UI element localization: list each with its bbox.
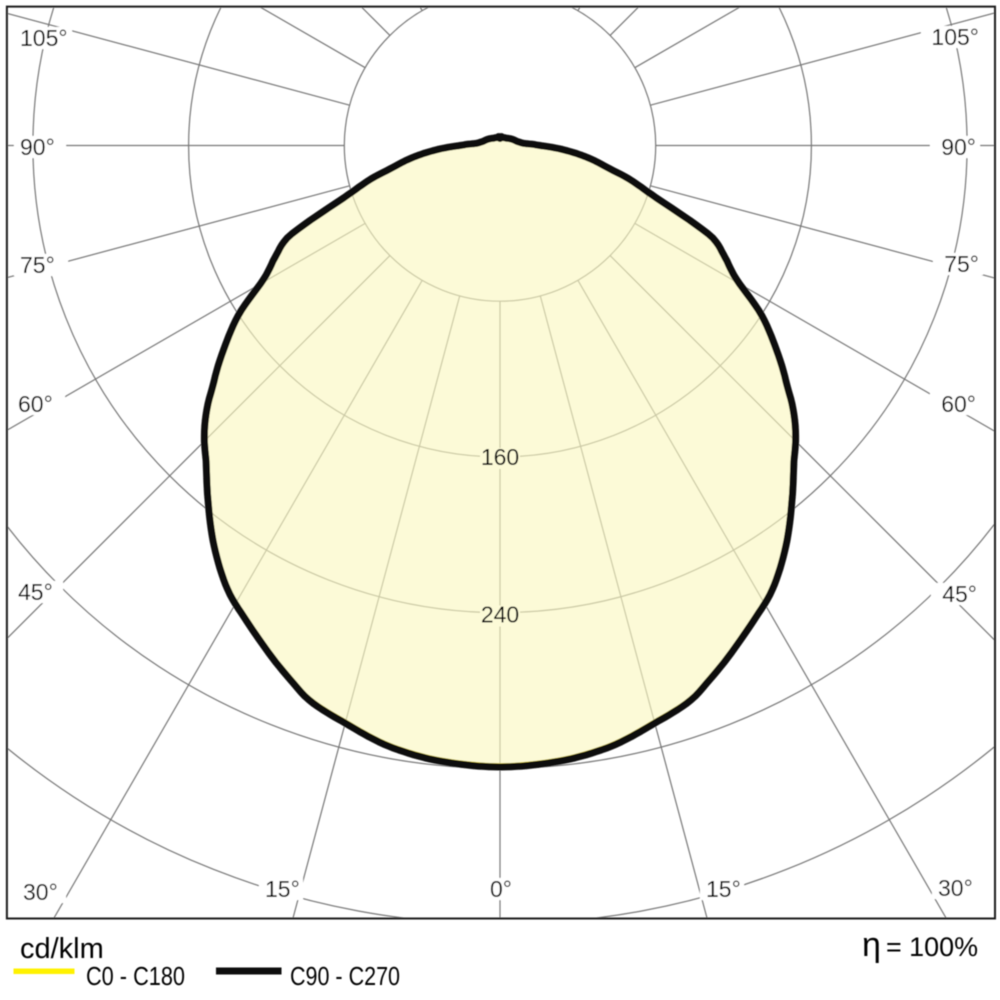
svg-text:105°: 105° <box>931 24 979 50</box>
svg-text:105°: 105° <box>20 25 68 51</box>
svg-text:C0 - C180: C0 - C180 <box>86 961 185 991</box>
svg-text:60°: 60° <box>941 391 976 417</box>
svg-text:15°: 15° <box>265 876 300 902</box>
svg-text:160: 160 <box>481 444 519 470</box>
svg-text:η: η <box>862 926 881 964</box>
svg-text:0°: 0° <box>490 876 512 902</box>
svg-text:45°: 45° <box>18 579 53 605</box>
svg-text:240: 240 <box>481 602 519 628</box>
svg-text:15°: 15° <box>706 876 741 902</box>
svg-text:30°: 30° <box>23 879 58 905</box>
svg-text:90°: 90° <box>941 134 976 160</box>
svg-text:C90 - C270: C90 - C270 <box>290 961 400 991</box>
svg-text:= 100%: = 100% <box>886 932 978 962</box>
svg-text:75°: 75° <box>20 252 55 278</box>
svg-text:60°: 60° <box>18 391 53 417</box>
svg-text:30°: 30° <box>938 875 973 901</box>
svg-text:45°: 45° <box>942 581 977 607</box>
svg-text:90°: 90° <box>20 134 55 160</box>
svg-text:75°: 75° <box>944 251 979 277</box>
